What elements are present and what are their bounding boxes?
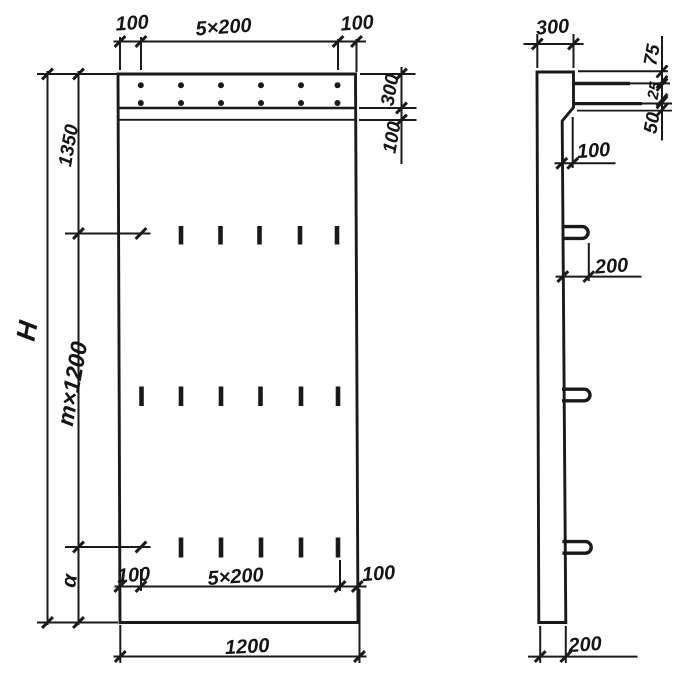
svg-text:50: 50 [640, 110, 664, 135]
svg-text:100: 100 [340, 11, 375, 35]
svg-text:100: 100 [115, 11, 150, 35]
svg-text:1200: 1200 [224, 635, 270, 659]
svg-text:100: 100 [576, 139, 611, 163]
svg-text:H: H [11, 318, 44, 343]
svg-text:100: 100 [361, 562, 396, 586]
svg-text:m×1200: m×1200 [52, 339, 92, 427]
svg-text:5×200: 5×200 [195, 15, 253, 41]
svg-text:100: 100 [116, 563, 151, 587]
svg-text:300: 300 [535, 15, 570, 39]
svg-text:5×200: 5×200 [207, 564, 265, 590]
svg-text:300: 300 [377, 72, 403, 107]
svg-text:75: 75 [640, 42, 664, 67]
svg-text:200: 200 [593, 254, 629, 278]
svg-text:25: 25 [645, 80, 665, 101]
svg-text:200: 200 [567, 633, 603, 657]
